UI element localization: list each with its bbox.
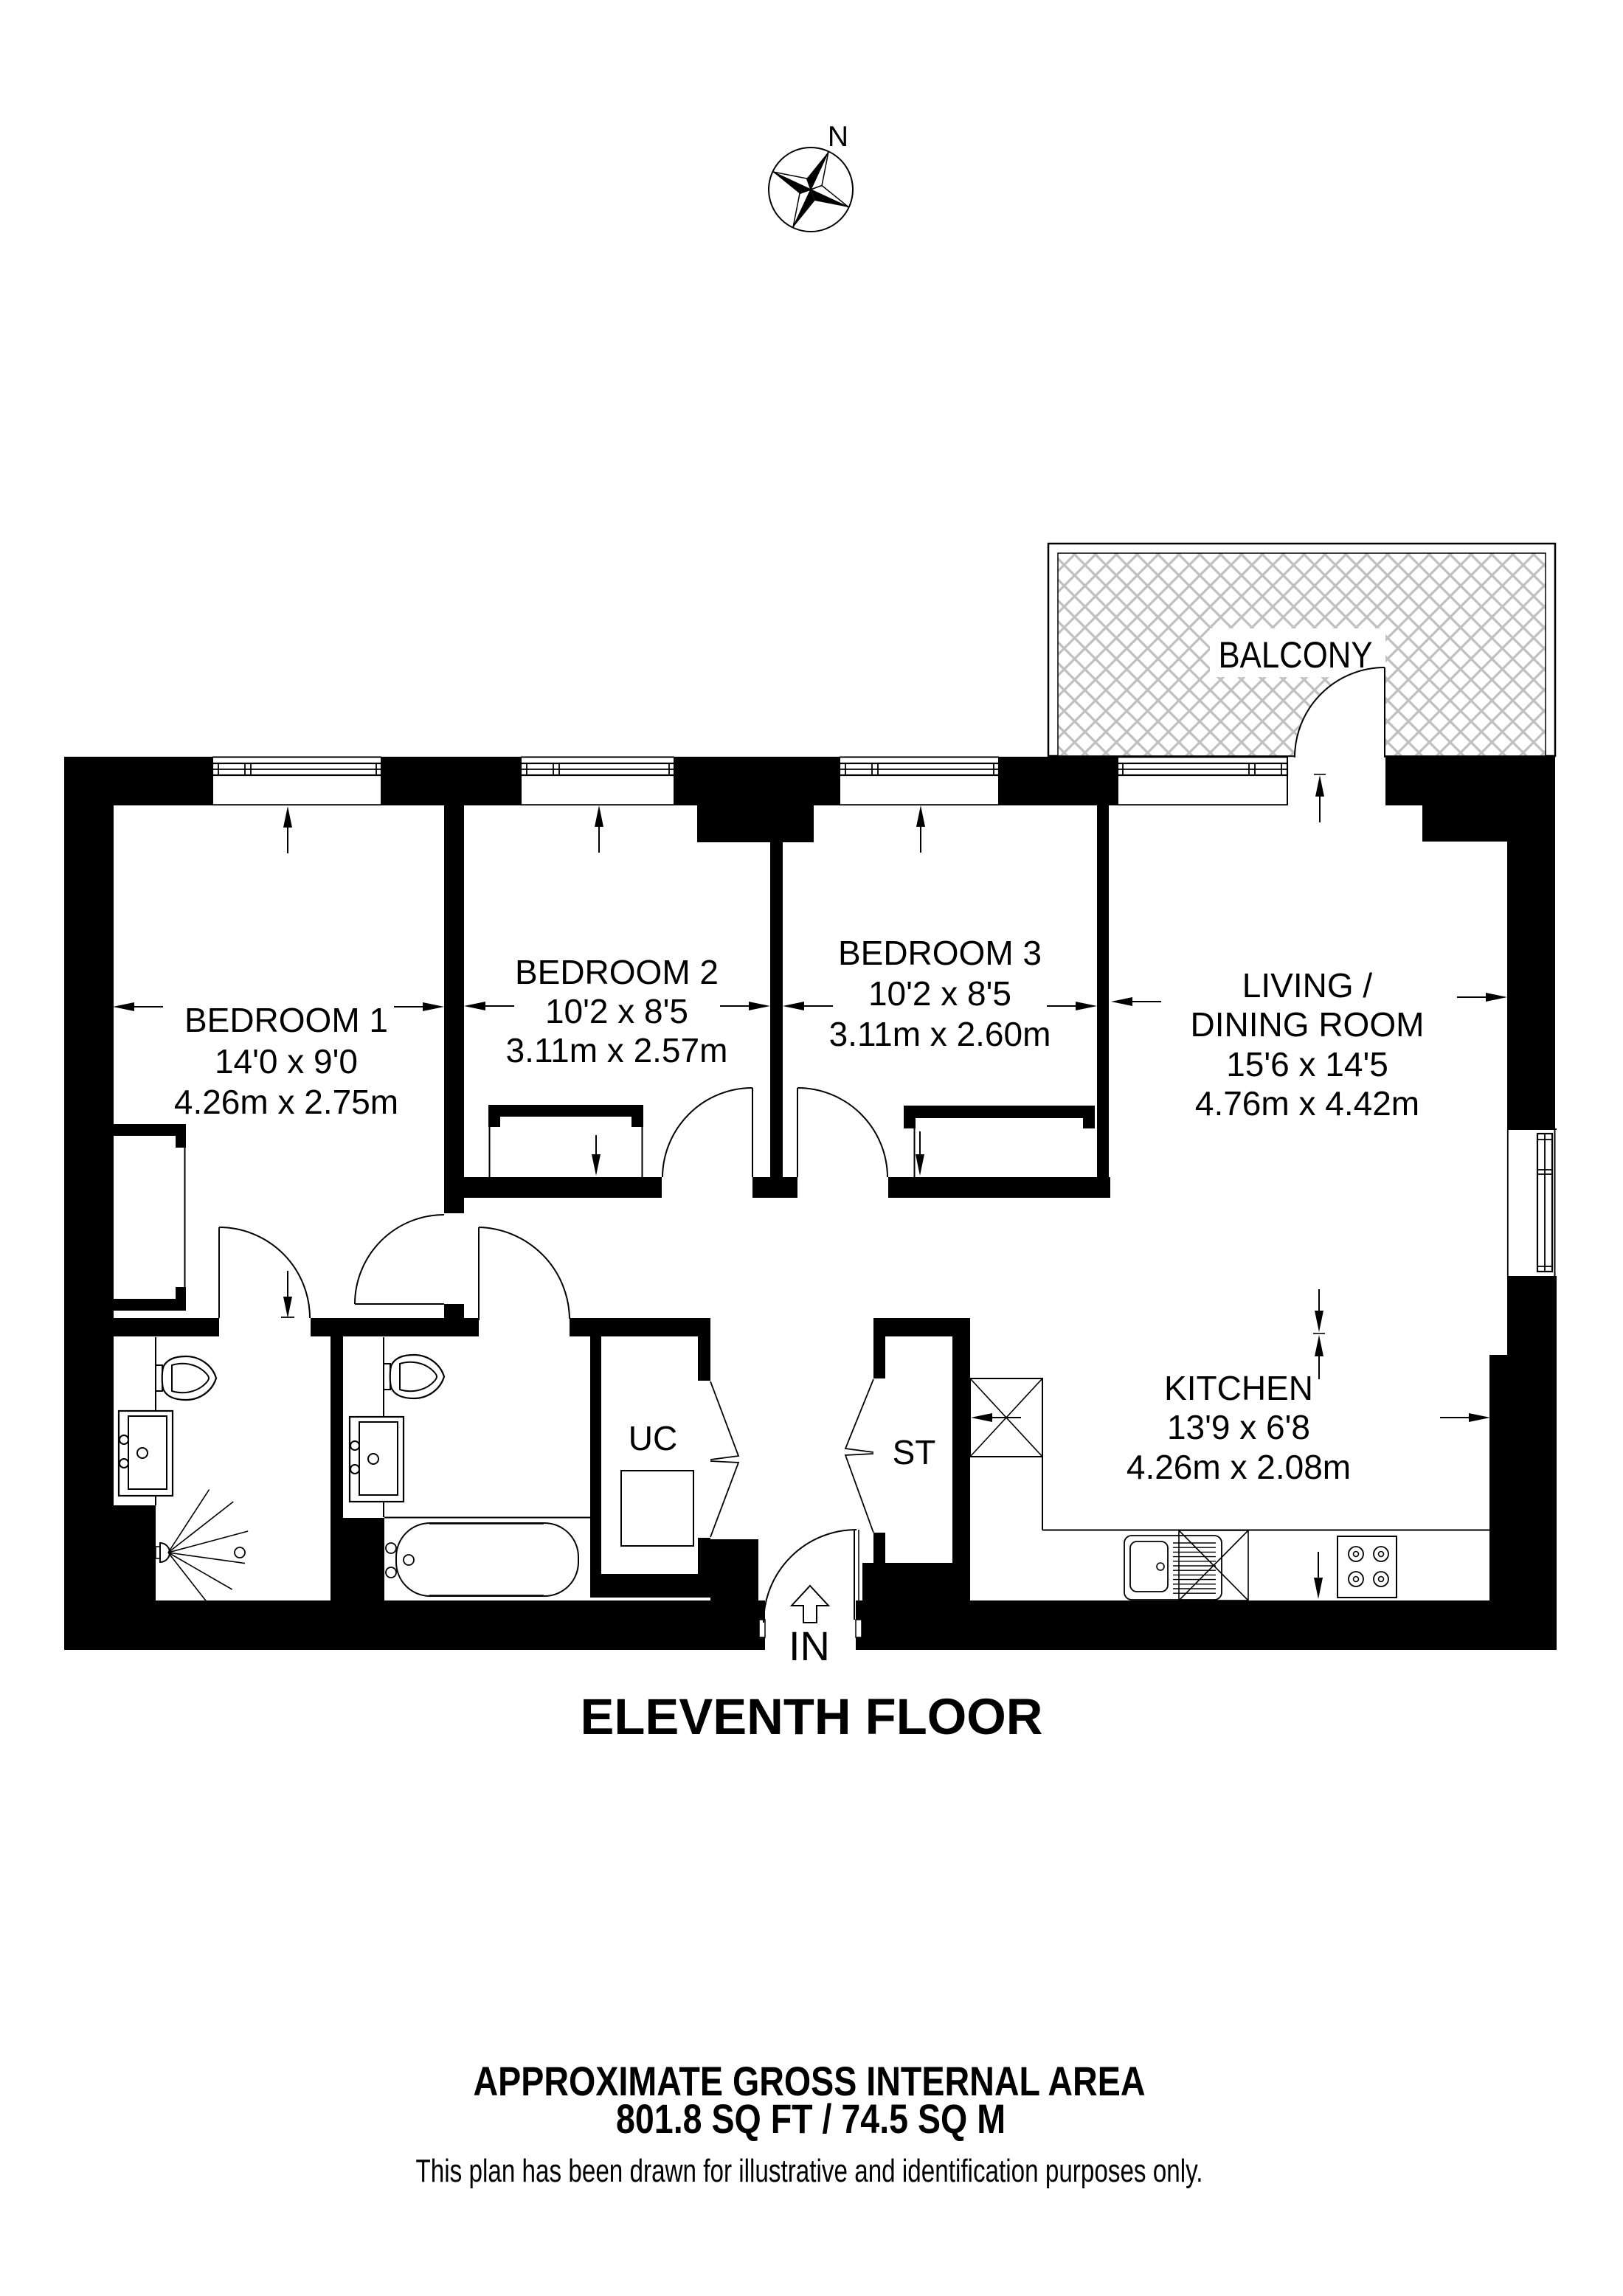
- svg-text:10'2 x 8'5: 10'2 x 8'5: [545, 992, 688, 1030]
- svg-text:4.26m x 2.75m: 4.26m x 2.75m: [174, 1083, 398, 1121]
- svg-text:ELEVENTH FLOOR: ELEVENTH FLOOR: [581, 1688, 1043, 1745]
- svg-text:BALCONY: BALCONY: [1219, 634, 1373, 676]
- svg-text:14'0 x 9'0: 14'0 x 9'0: [215, 1042, 358, 1081]
- svg-text:BEDROOM 2: BEDROOM 2: [515, 953, 719, 991]
- svg-text:15'6 x 14'5: 15'6 x 14'5: [1226, 1045, 1388, 1083]
- svg-text:BEDROOM 1: BEDROOM 1: [184, 1001, 388, 1039]
- svg-text:ST: ST: [893, 1433, 936, 1471]
- svg-text:UC: UC: [629, 1419, 677, 1457]
- svg-text:BEDROOM 3: BEDROOM 3: [838, 934, 1042, 972]
- svg-text:3.11m x 2.60m: 3.11m x 2.60m: [829, 1015, 1051, 1053]
- svg-text:4.26m x 2.08m: 4.26m x 2.08m: [1127, 1448, 1351, 1486]
- svg-text:3.11m x 2.57m: 3.11m x 2.57m: [506, 1031, 728, 1069]
- svg-text:LIVING /: LIVING /: [1242, 966, 1373, 1005]
- svg-text:801.8 SQ FT / 74.5 SQ M: 801.8 SQ FT / 74.5 SQ M: [616, 2095, 1006, 2142]
- svg-text:DINING ROOM: DINING ROOM: [1191, 1005, 1425, 1044]
- svg-text:4.76m x 4.42m: 4.76m x 4.42m: [1195, 1084, 1419, 1123]
- svg-text:13'9 x 6'8: 13'9 x 6'8: [1167, 1408, 1310, 1446]
- svg-text:This plan has been drawn for i: This plan has been drawn for illustrativ…: [416, 2153, 1203, 2189]
- svg-text:IN: IN: [789, 1623, 830, 1669]
- svg-text:10'2 x 8'5: 10'2 x 8'5: [868, 974, 1011, 1013]
- svg-text:N: N: [828, 121, 848, 153]
- svg-text:KITCHEN: KITCHEN: [1164, 1369, 1313, 1407]
